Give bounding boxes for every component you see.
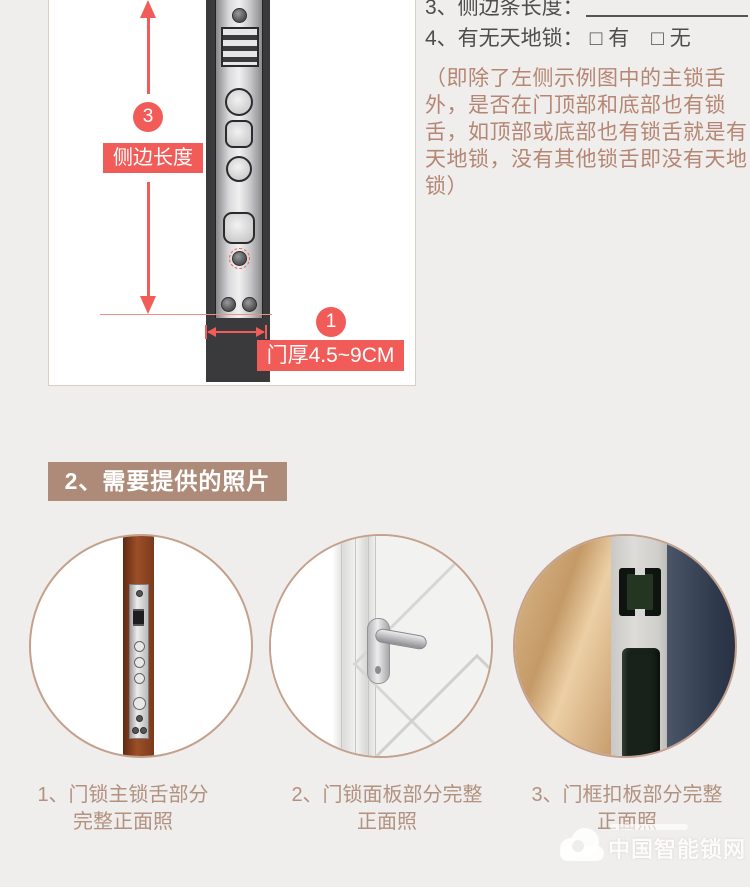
bolt-hole: [134, 657, 145, 668]
measure-line: [147, 182, 150, 298]
handle-escutcheon: [367, 618, 390, 684]
screw-icon: [232, 8, 247, 23]
bracket-tick: [265, 325, 267, 339]
checkbox-yes: □ 有: [590, 27, 630, 50]
caption-main-bolt: 1、门锁主锁舌部分 完整正面照: [8, 782, 238, 836]
cloud-shape: [572, 840, 584, 852]
photo-main-bolt: [29, 534, 253, 758]
door-thickness-label: 门厚4.5~9CM: [257, 340, 404, 371]
bolt-hole: [225, 120, 253, 148]
latch-slot: [619, 568, 661, 616]
screw-icon: [136, 715, 143, 722]
caption-line1: 1、门锁主锁舌部分: [8, 782, 238, 809]
watermark-small-line: [610, 824, 688, 830]
photo-strike-plate: [513, 534, 737, 758]
lock-measurement-infographic: 3 侧边长度 1 门厚4.5~9CM 3、侧边条长度： 4、有无天地锁：□ 有□…: [0, 0, 750, 887]
photo-lock-panel: [269, 534, 493, 758]
screw-marked-icon: [232, 251, 247, 266]
side-length-label: 侧边长度: [103, 143, 203, 173]
measure-checklist: 3、侧边条长度： 4、有无天地锁：□ 有□ 无 （即除了左侧示例图中的主锁舌外，…: [425, 0, 748, 200]
step-badge-1: 1: [316, 307, 346, 337]
keyhole-icon: [375, 666, 381, 674]
wood-door-area: [515, 536, 611, 756]
bolt-hole: [134, 673, 145, 684]
step-badge-3: 3: [133, 102, 163, 132]
bolt-slot: [622, 648, 660, 758]
baseline-rule: [100, 314, 272, 315]
caption-line1: 2、门锁面板部分完整: [262, 782, 512, 809]
slot-notch: [635, 609, 645, 616]
caption-line2: 完整正面照: [8, 809, 238, 836]
screw-icon: [221, 297, 236, 312]
bracket-arrow-right-icon: [256, 327, 265, 337]
cloud-logo-icon: [558, 826, 608, 862]
bracket-arrow-left-icon: [207, 327, 216, 337]
wall-white-area: [271, 536, 333, 756]
checklist-item-3-label: 3、侧边条长度：: [425, 0, 584, 21]
caption-line1: 3、门框扣板部分完整: [502, 782, 750, 809]
frame-line: [355, 536, 356, 756]
screw-icon: [140, 727, 147, 734]
slot-notch: [635, 568, 645, 575]
bolt-hole: [226, 156, 252, 182]
measure-line: [147, 12, 150, 94]
checklist-item-4-label: 4、有无天地锁：: [425, 27, 584, 50]
blank-fill-line: [586, 15, 748, 17]
section-heading-photos: 2、需要提供的照片: [48, 462, 287, 501]
bolt-hole: [223, 212, 255, 244]
dark-frame-area: [667, 536, 735, 756]
bolt-hole: [134, 641, 145, 652]
door-edge-illustration: [206, 0, 270, 382]
bolt-hole: [133, 697, 146, 710]
latch-slot-inner: [627, 574, 653, 610]
lock-faceplate-small: [129, 584, 149, 739]
checklist-item-sky-earth-lock: 4、有无天地锁：□ 有□ 无: [425, 26, 748, 52]
latch-bolt: [133, 609, 144, 626]
watermark-text: 中国智能锁网: [608, 832, 748, 864]
caption-lock-panel: 2、门锁面板部分完整 正面照: [262, 782, 512, 836]
sky-earth-lock-note: （即除了左侧示例图中的主锁舌外，是否在门顶部和底部也有锁舌，如顶部或底部也有锁舌…: [425, 65, 748, 200]
bolt-hole: [225, 88, 253, 116]
caption-line2: 正面照: [262, 809, 512, 836]
site-watermark: 中国智能锁网: [558, 816, 748, 876]
lock-faceplate: [215, 0, 263, 318]
measure-arrow-down-icon: [140, 296, 156, 314]
frame-line: [341, 536, 342, 756]
latch-bolt: [221, 27, 259, 67]
screw-icon: [132, 727, 139, 734]
screw-icon: [136, 590, 143, 597]
screw-icon: [242, 297, 257, 312]
checklist-item-side-length: 3、侧边条长度：: [425, 0, 748, 21]
checkbox-no: □ 无: [651, 27, 691, 50]
